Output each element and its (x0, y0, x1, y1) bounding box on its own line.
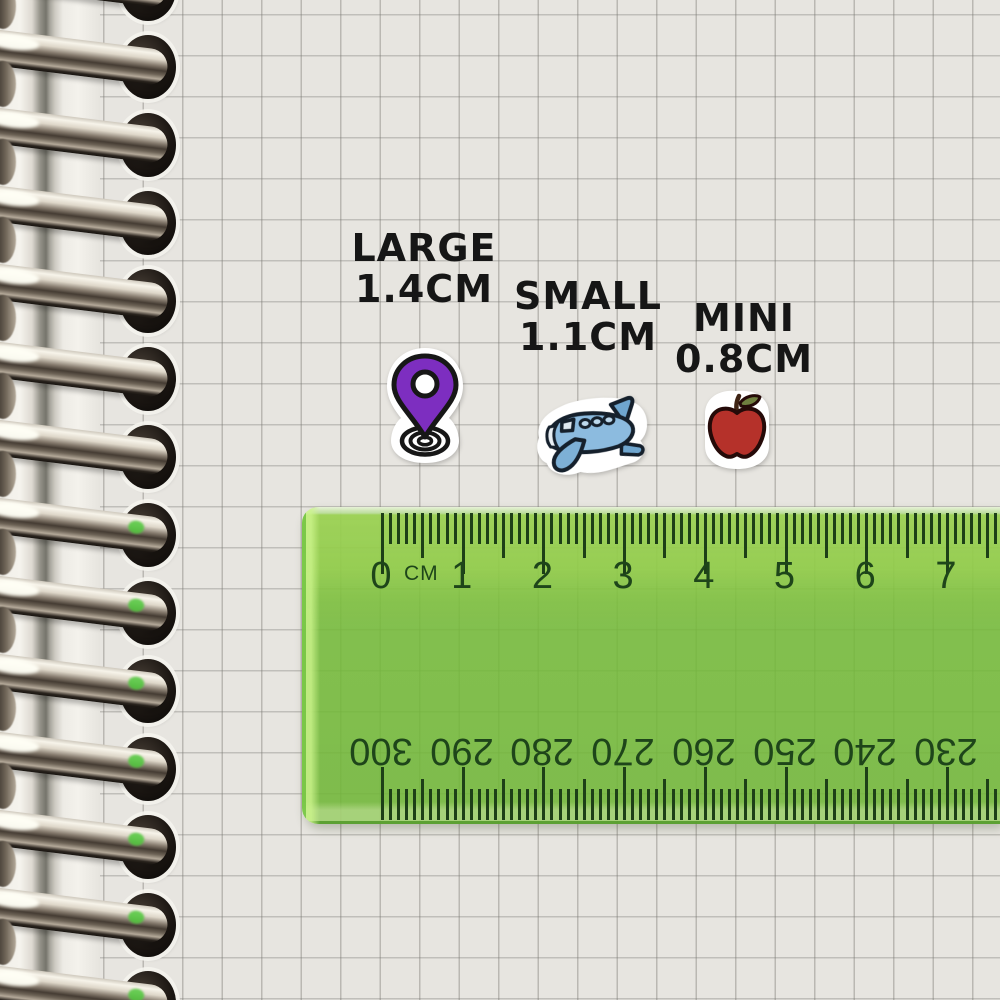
ruler-tick (575, 513, 578, 544)
ruler-tick (494, 789, 497, 820)
ruler-bottom-number: 250 (745, 729, 825, 772)
spiral-ring (0, 409, 190, 487)
ruler-tick (970, 789, 973, 820)
ruler-tick (526, 513, 529, 544)
ruler-tick (768, 789, 771, 820)
ruler-tick (744, 513, 747, 558)
ruler-bottom-number: 260 (664, 729, 744, 772)
ruler-tick (405, 513, 408, 544)
ruler-tick (785, 767, 788, 820)
ruler-tick (994, 513, 997, 544)
ruler-tick (607, 789, 610, 820)
ruler-tick (631, 789, 634, 820)
ruler-tick (736, 513, 739, 544)
ruler-tick (833, 789, 836, 820)
ruler-tick (429, 789, 432, 820)
ruler-tick (486, 513, 489, 544)
ruler-tick (962, 789, 965, 820)
ruler-tick (760, 789, 763, 820)
ruler-tick (615, 513, 618, 544)
ruler-tick (663, 513, 666, 558)
ruler-tick (518, 789, 521, 820)
caption-mini-size: 0.8CM (659, 339, 829, 380)
coil-back (0, 0, 16, 29)
spiral-ring (0, 877, 190, 955)
ruler-tick (389, 789, 392, 820)
ruler-tick (793, 789, 796, 820)
ruler-tick (825, 513, 828, 558)
ruler-tick (542, 767, 545, 820)
ruler-tick (680, 789, 683, 820)
ruler-tick (994, 789, 997, 820)
ruler-tick (857, 513, 860, 544)
caption-large: LARGE 1.4CM (339, 228, 509, 310)
ruler-tick (809, 513, 812, 544)
ruler-tick (615, 789, 618, 820)
ruler-tick (954, 513, 957, 544)
ruler-tick (720, 789, 723, 820)
ruler-tick (914, 789, 917, 820)
ruler-tick (672, 789, 675, 820)
ruler-tick (623, 767, 626, 820)
ruler-tick (437, 513, 440, 544)
ruler-tick (631, 513, 634, 544)
spiral-ring (0, 955, 190, 1000)
ruler-tick (930, 513, 933, 544)
spiral-binding (0, 0, 190, 1000)
ruler-tick (518, 513, 521, 544)
caption-small-label: SMALL (503, 276, 673, 317)
ruler-tick (744, 779, 747, 820)
ruler-tick (809, 789, 812, 820)
ruler-bottom-number: 280 (502, 729, 582, 772)
ruler-tick (421, 513, 424, 558)
ruler-tick (873, 789, 876, 820)
ruler-bottom-number: 270 (583, 729, 663, 772)
ruler-tick (986, 513, 989, 558)
ruler-tick (639, 513, 642, 544)
ruler-tick (502, 513, 505, 558)
ruler-tick (437, 789, 440, 820)
ruler-tick (938, 513, 941, 544)
ruler-top-number: 5 (745, 555, 825, 598)
ruler-tick (599, 513, 602, 544)
ruler-tick (752, 513, 755, 544)
ruler-tick (405, 789, 408, 820)
ruler-tick (470, 789, 473, 820)
ruler-tick (397, 513, 400, 544)
airplane-icon (531, 392, 654, 480)
ruler-top-number: 3 (583, 555, 663, 598)
ruler-tick (550, 789, 553, 820)
ruler-tick (591, 513, 594, 544)
ruler-tick (817, 513, 820, 544)
ruler-tick (454, 789, 457, 820)
ruler-tick (421, 779, 424, 820)
spiral-ring (0, 799, 190, 877)
ruler-bottom-number: 240 (825, 729, 905, 772)
ruler-tick (906, 779, 909, 820)
spiral-ring (0, 331, 190, 409)
ruler-tick (486, 789, 489, 820)
notebook-photo-scene: LARGE 1.4CM SMALL 1.1CM MINI 0.8CM (0, 0, 1000, 1000)
spiral-ring (0, 721, 190, 799)
ruler-tick (833, 513, 836, 544)
ruler-tick (889, 789, 892, 820)
ruler-tick (413, 513, 416, 544)
ruler-tick (986, 779, 989, 820)
ruler-tick (567, 789, 570, 820)
ruler-tick (906, 513, 909, 558)
ruler-tick (534, 513, 537, 544)
ruler-tick (381, 767, 384, 820)
ruler-tick (752, 789, 755, 820)
ruler-tick (696, 513, 699, 544)
apple-icon (702, 388, 772, 470)
ruler-top-number: 0 (341, 555, 421, 598)
ruler-tick (454, 513, 457, 544)
ruler-tick (946, 767, 949, 820)
ruler-tick (849, 789, 852, 820)
ruler-tick (970, 513, 973, 544)
spiral-ring (0, 175, 190, 253)
ruler-tick (825, 779, 828, 820)
ruler-tick (413, 789, 416, 820)
ruler-tick (647, 789, 650, 820)
caption-large-size: 1.4CM (339, 269, 509, 310)
ruler-tick (599, 789, 602, 820)
spiral-ring (0, 487, 190, 565)
ruler-tick (696, 789, 699, 820)
ruler-tick (462, 767, 465, 820)
ruler-tick (978, 513, 981, 544)
ruler-tick (583, 513, 586, 558)
ruler-tick (841, 513, 844, 544)
ruler-tick (389, 513, 392, 544)
ruler-tick (446, 789, 449, 820)
ruler-tick (793, 513, 796, 544)
ruler-tick (470, 513, 473, 544)
ruler-tick (712, 513, 715, 544)
ruler-tick (655, 513, 658, 544)
ruler-bottom-number: 290 (422, 729, 502, 772)
ruler-tick (446, 513, 449, 544)
ruler-tick (397, 789, 400, 820)
ruler-tick (865, 767, 868, 820)
ruler-tick (575, 789, 578, 820)
ruler-tick (776, 513, 779, 544)
ruler-tick (567, 513, 570, 544)
ruler-tick (736, 789, 739, 820)
ruler-tick (938, 789, 941, 820)
location-pin-icon (383, 346, 467, 464)
caption-mini-label: MINI (659, 298, 829, 339)
ruler-tick (663, 779, 666, 820)
spiral-ring (0, 565, 190, 643)
ruler-tick (550, 513, 553, 544)
ruler-tick (583, 779, 586, 820)
spiral-ring (0, 0, 190, 19)
ruler-tick (672, 513, 675, 544)
ruler-tick (817, 789, 820, 820)
ruler-tick (494, 513, 497, 544)
ruler-tick (720, 513, 723, 544)
ruler-top-number: 6 (825, 555, 905, 598)
ruler-top-number: 7 (906, 555, 986, 598)
ruler-tick (768, 513, 771, 544)
ruler-tick (639, 789, 642, 820)
ruler-tick (728, 513, 731, 544)
ruler-bottom-number: 230 (906, 729, 986, 772)
ruler-tick (688, 789, 691, 820)
ruler-tick (849, 513, 852, 544)
ruler-tick (680, 513, 683, 544)
caption-large-label: LARGE (339, 228, 509, 269)
ruler-tick (889, 513, 892, 544)
ruler-tick (728, 789, 731, 820)
ruler-tick (712, 789, 715, 820)
ruler-top-number: 4 (664, 555, 744, 598)
ruler-tick (647, 513, 650, 544)
spiral-ring (0, 19, 190, 97)
spiral-ring (0, 97, 190, 175)
ruler-tick (897, 513, 900, 544)
ruler-tick (801, 789, 804, 820)
ruler-tick (478, 789, 481, 820)
ruler-tick (510, 513, 513, 544)
ruler-top-number: 1 (422, 555, 502, 598)
ruler-tick (978, 789, 981, 820)
ruler-tick (914, 513, 917, 544)
ruler-tick (607, 513, 610, 544)
ruler-tick (841, 789, 844, 820)
ruler-tick (881, 513, 884, 544)
ruler-tick (526, 789, 529, 820)
spiral-ring (0, 253, 190, 331)
ruler-tick (922, 789, 925, 820)
ruler-tick (655, 789, 658, 820)
ruler-tick (922, 513, 925, 544)
ruler-tick (591, 789, 594, 820)
ruler-tick (688, 513, 691, 544)
spiral-ring (0, 643, 190, 721)
ruler-tick (760, 513, 763, 544)
ruler-tick (510, 789, 513, 820)
ruler-top-number: 2 (502, 555, 582, 598)
caption-small: SMALL 1.1CM (503, 276, 673, 358)
ruler-tick (801, 513, 804, 544)
ruler-tick (954, 789, 957, 820)
caption-mini: MINI 0.8CM (659, 298, 829, 380)
caption-small-size: 1.1CM (503, 317, 673, 358)
ruler-tick (962, 513, 965, 544)
ruler-tick (873, 513, 876, 544)
ruler: CM 01234567300290280270260250240230 (302, 507, 1000, 824)
ruler-tick (776, 789, 779, 820)
ruler-tick (897, 789, 900, 820)
ruler-tick (881, 789, 884, 820)
ruler-tick (429, 513, 432, 544)
ruler-tick (478, 513, 481, 544)
ruler-tick (930, 789, 933, 820)
ruler-tick (502, 779, 505, 820)
ruler-tick (857, 789, 860, 820)
ruler-bottom-number: 300 (341, 729, 421, 772)
ruler-tick (559, 513, 562, 544)
ruler-tick (534, 789, 537, 820)
ruler-tick (559, 789, 562, 820)
ruler-tick (704, 767, 707, 820)
